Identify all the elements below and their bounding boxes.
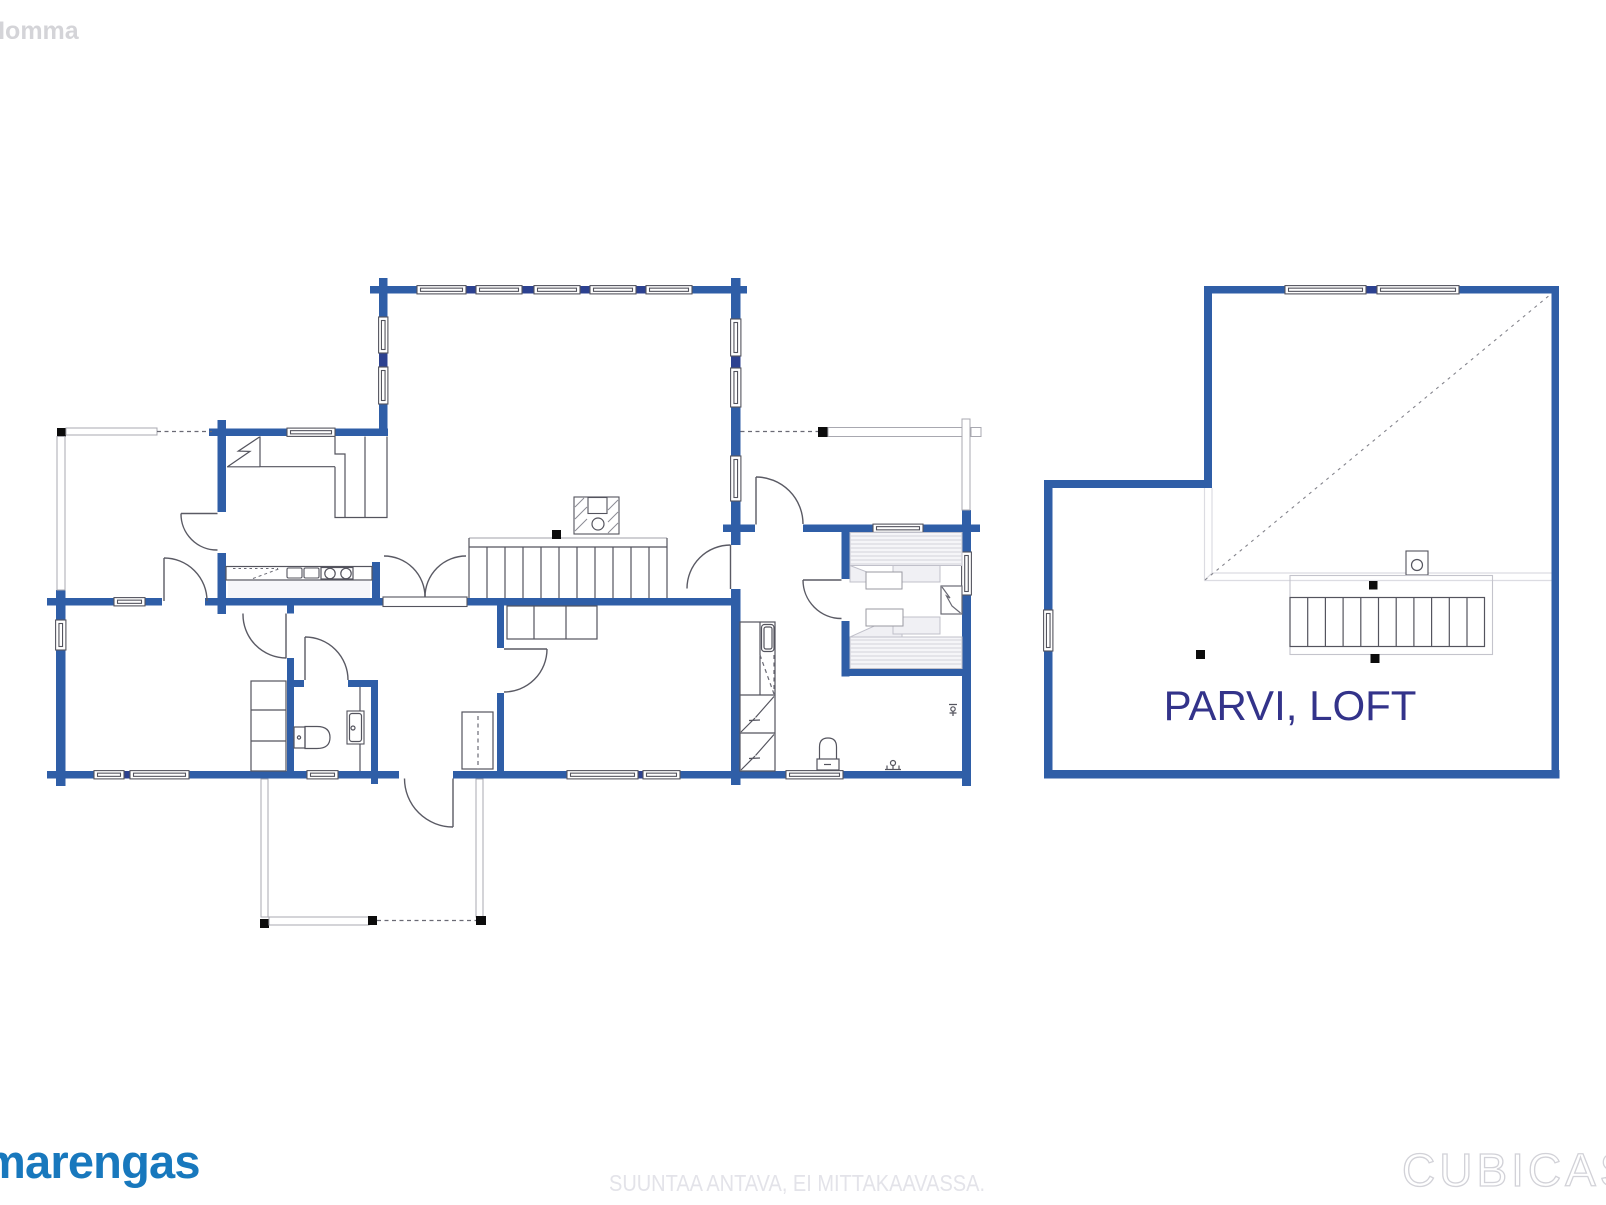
svg-text:marengas: marengas	[0, 1135, 200, 1188]
svg-text:Homma: Homma	[0, 17, 80, 45]
svg-text:PARVI, LOFT: PARVI, LOFT	[1164, 682, 1417, 729]
svg-text:SUUNTAA ANTAVA, EI MITTAKAAVAS: SUUNTAA ANTAVA, EI MITTAKAAVASSA.	[609, 1170, 985, 1196]
svg-text:CUBICAS: CUBICAS	[1402, 1144, 1606, 1196]
